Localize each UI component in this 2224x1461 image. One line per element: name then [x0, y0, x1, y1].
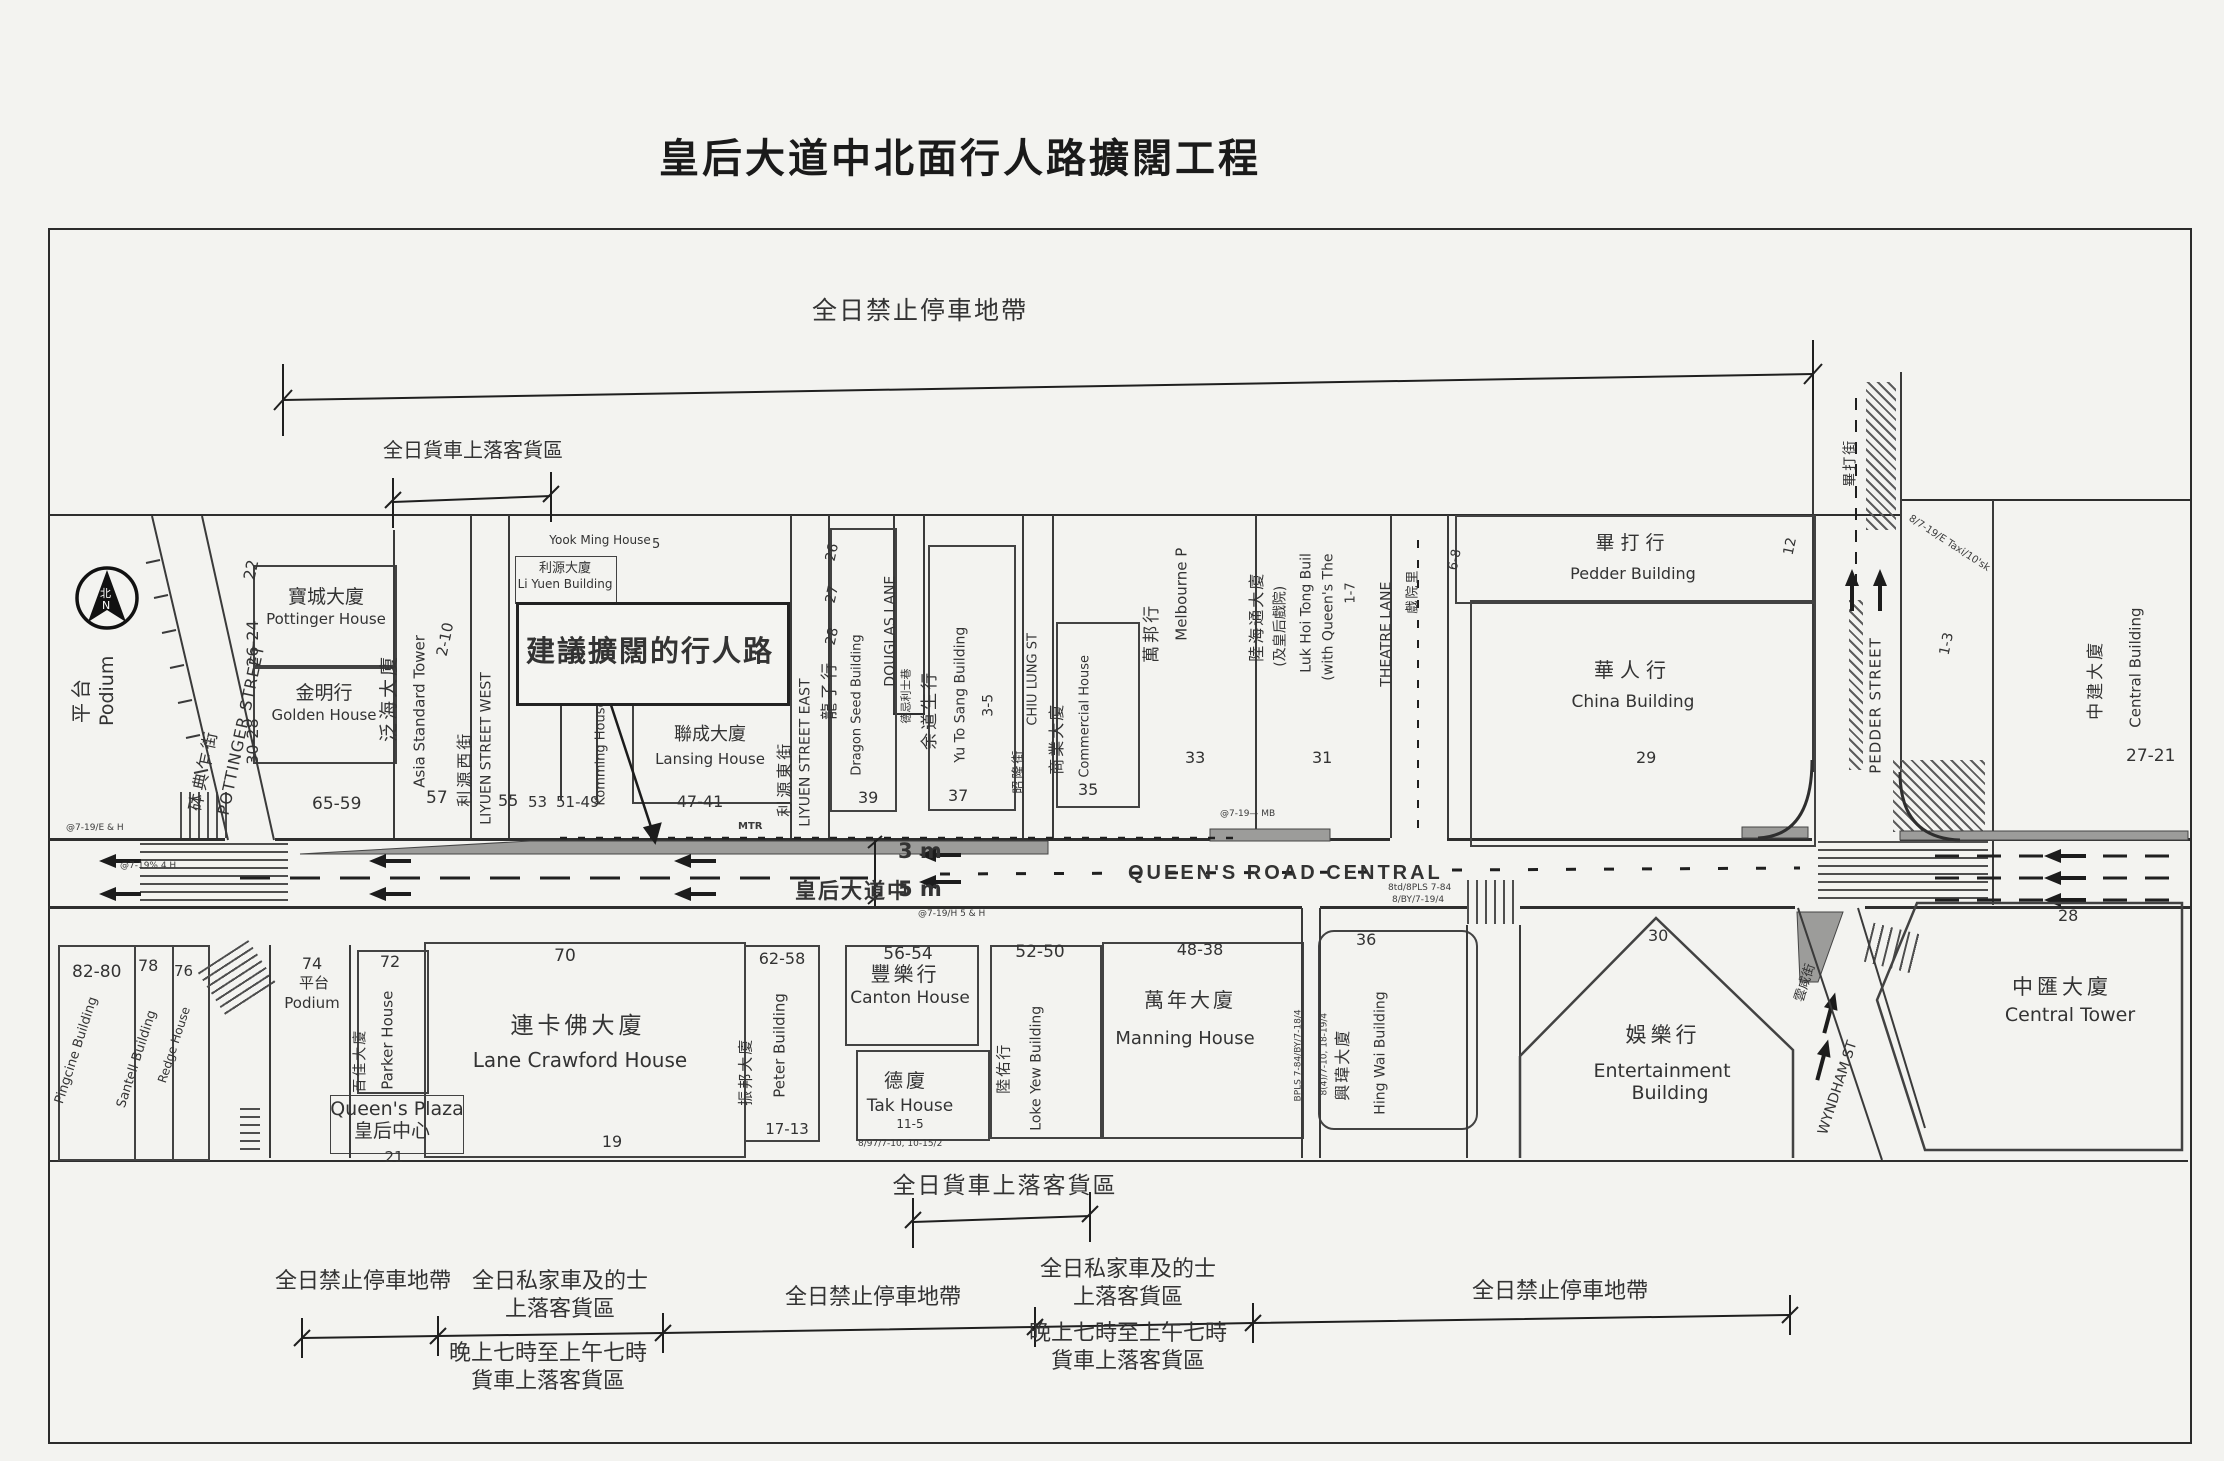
luk-hoi-tong-zh2: (及皇后戲院): [1273, 586, 1288, 667]
annotation-no-stopping-right: 全日禁止停車地帶: [1472, 1280, 1648, 1303]
loke-yew-en: Loke Yew Building: [1029, 1006, 1044, 1131]
entertainment-no: 30: [1648, 928, 1668, 945]
street-label-liyuen-east-zh: 利源東街: [777, 741, 794, 817]
hing-wai-no: 36: [1356, 932, 1376, 949]
road-dim-5m: 5 m: [898, 878, 942, 900]
svg-text:N: N: [102, 599, 110, 612]
commercial-house-zh: 商業大廈: [1049, 703, 1066, 775]
manning-house-zh: 萬年大廈: [1144, 990, 1236, 1011]
kerb-annotation: @7-19— MB: [1220, 810, 1275, 819]
hing-wai-en: Hing Wai Building: [1373, 991, 1388, 1114]
lot-number: 53: [528, 795, 547, 811]
pedder-building-zh: 畢打行: [1595, 534, 1670, 554]
kerb-annotation: 8/BY/7-19/4: [1392, 896, 1444, 905]
santell-no: 78: [138, 958, 158, 975]
loke-yew-no: 52-50: [1015, 944, 1064, 962]
hing-wai-zh: 興瑋大廈: [1335, 1029, 1352, 1101]
dragon-seed-en: Dragon Seed Building: [850, 634, 864, 775]
queens-plaza-en: Queen's Plaza: [330, 1100, 464, 1120]
annotation-night-truck-left-1: 晚上七時至上午七時: [449, 1342, 647, 1365]
central-tower-zh: 中匯大廈: [2012, 976, 2112, 998]
komming-house-en: Komming House: [594, 700, 608, 806]
liyuen-building-en: Li Yuen Building: [518, 578, 613, 591]
manning-house-no: 48-38: [1177, 942, 1224, 959]
kerb-annotation: @7-19/H 5 & H: [918, 910, 985, 919]
central-tower-no: 28: [2058, 908, 2078, 925]
tak-house-zh: 德廈: [884, 1072, 928, 1092]
parker-house-zh: 百佳大廈: [353, 1029, 368, 1093]
plan-linework: 北 N: [0, 0, 2224, 1461]
pottinger-house-no: 26-24: [245, 620, 262, 667]
entertainment-zh: 娛樂行: [1626, 1024, 1701, 1046]
lane-crawford-no1: 70: [554, 948, 576, 966]
china-building-zh: 華人行: [1594, 660, 1672, 681]
kerb-annotation: BPLS 7-84/BY/7-18/4: [1295, 1009, 1304, 1101]
queens-plaza-no: 21: [384, 1150, 403, 1166]
lane-crawford-no2: 19: [602, 1134, 622, 1151]
street-label-pedder-en: PEDDER STREET: [1868, 637, 1884, 774]
kerb-annotation: @7-19% 4 H: [120, 862, 176, 871]
central-tower-en: Central Tower: [2005, 1006, 2135, 1026]
street-label-chiu-lung-en: CHIU LUNG ST: [1026, 633, 1040, 726]
golden-house-en: Golden House: [272, 708, 377, 724]
entertainment-en2: Building: [1631, 1084, 1708, 1104]
north-arrow-icon: 北 N: [77, 568, 137, 628]
b8280-no: 82-80: [72, 964, 121, 982]
mtr-entrance-label: MTR: [738, 822, 762, 833]
podium-south-no: 74: [302, 956, 322, 973]
luk-hoi-tong-no1: 1-7: [1344, 582, 1358, 603]
street-label-theatre-en: THEATRE LANE: [1379, 582, 1394, 687]
parker-house-en: Parker House: [380, 991, 396, 1090]
yu-to-sang-zh: 余道生行: [922, 670, 940, 750]
yu-to-sang-en: Yu To Sang Building: [953, 627, 968, 763]
commercial-house-no: 35: [1078, 782, 1098, 799]
peter-building-no1: 62-58: [759, 951, 806, 968]
queens-plaza-zh: 皇后中心: [354, 1122, 430, 1142]
annotation-night-truck-right-1: 晚上七時至上午七時: [1029, 1322, 1227, 1345]
lot-number: 57: [426, 790, 448, 808]
melbourne-no: 33: [1185, 750, 1205, 767]
proposed-footpath-callout: 建議擴闊的行人路: [526, 636, 774, 666]
yook-ming-house-en: Yook Ming House: [549, 534, 651, 547]
asia-standard-en: Asia Standard Tower: [412, 635, 428, 788]
street-label-douglas-en: DOUGLAS LANE: [883, 576, 898, 687]
dragon-seed-zh: 龍子行: [822, 660, 840, 720]
kerb-annotation: 8(4)/7-10, 18-19/4: [1321, 1013, 1330, 1096]
podium-west-en: Podium: [98, 656, 118, 726]
annotation-no-stopping-mid: 全日禁止停車地帶: [785, 1286, 961, 1309]
tak-house-no: 11-5: [896, 1118, 923, 1131]
luk-hoi-tong-en2: (with Queen's The: [1321, 553, 1336, 680]
pottinger-house-zh: 寶城大廈: [288, 588, 364, 608]
golden-house-zh: 金明行: [295, 684, 352, 704]
entertainment-en1: Entertainment: [1593, 1062, 1730, 1082]
road-dim-3m: 3 m: [898, 840, 942, 862]
tak-house-en: Tak House: [867, 1098, 954, 1116]
podium-south-en: Podium: [284, 996, 340, 1012]
annotation-private-car-left-1: 全日私家車及的士: [472, 1270, 648, 1293]
china-building-en: China Building: [1572, 694, 1695, 712]
central-building-en: Central Building: [2128, 608, 2144, 728]
melbourne-en: Melbourne P: [1174, 548, 1190, 641]
lane-crawford-zh: 連卡佛大廈: [511, 1014, 646, 1038]
lansing-house-en: Lansing House: [655, 752, 765, 768]
pedder-building-en: Pedder Building: [1570, 566, 1696, 583]
annotation-private-car-right-1: 全日私家車及的士: [1040, 1258, 1216, 1281]
peter-building-zh: 振邦大廈: [738, 1038, 754, 1106]
canton-house-en: Canton House: [850, 990, 970, 1008]
street-label-chiu-lung-zh: 昭隆街: [1012, 749, 1026, 794]
canton-house-zh: 豐樂行: [871, 964, 940, 985]
lot-number: 27-21: [2126, 748, 2175, 766]
kerb-annotation: 8/97/7-10, 10-15/2: [858, 1140, 942, 1149]
annotation-loading-bottom: 全日貨車上落客貨區: [893, 1174, 1118, 1198]
parker-house-no: 72: [380, 954, 400, 971]
luk-hoi-tong-no2: 31: [1312, 750, 1332, 767]
street-label-douglas-zh: 德忌利士巷: [900, 669, 912, 724]
peter-building-no2: 17-13: [765, 1122, 809, 1138]
street-label-liyuen-east-en: LIYUEN STREET EAST: [798, 678, 813, 826]
manning-house-en: Manning House: [1115, 1030, 1254, 1049]
dragon-seed-no: 39: [858, 790, 878, 807]
commercial-house-en: Commercial House: [1078, 655, 1092, 778]
golden-house-no: 30-28: [245, 718, 262, 765]
kerb-annotation: 8td/8PLS 7-84: [1388, 884, 1451, 893]
kerb-annotation: @7-19/E & H: [66, 824, 124, 833]
liyuen-building-zh: 利源大廈: [539, 562, 591, 576]
melbourne-zh: 萬邦行: [1144, 603, 1162, 663]
peter-building-en: Peter Building: [772, 993, 788, 1098]
podium-south-zh: 平台: [299, 976, 329, 992]
loke-yew-zh: 陸佑行: [996, 1043, 1012, 1094]
annotation-night-truck-right-2: 貨車上落客貨區: [1051, 1350, 1205, 1373]
yu-to-sang-no1: 3-5: [981, 694, 996, 717]
redge-no: 76: [174, 964, 193, 980]
annotation-night-truck-left-2: 貨車上落客貨區: [471, 1370, 625, 1393]
street-label-theatre-zh: 戲院里: [1406, 569, 1420, 614]
road-name-en: QUEEN'S ROAD CENTRAL: [1128, 863, 1443, 884]
luk-hoi-tong-zh1: 陸海通大廈: [1249, 572, 1266, 662]
street-label-liyuen-west-en: LIYUEN STREET WEST: [479, 672, 494, 824]
annotation-private-car-right-2: 上落客貨區: [1073, 1286, 1183, 1309]
pottinger-house-en: Pottinger House: [266, 612, 386, 628]
lansing-house-no: 47-41: [677, 794, 724, 811]
yook-ming-house-no: 5: [652, 538, 660, 552]
asia-standard-zh: 泛海大廈: [380, 654, 400, 742]
street-label-liyuen-west-zh: 利源西街: [457, 731, 474, 807]
china-building-no: 29: [1636, 750, 1656, 767]
podium-west-zh: 平台: [71, 675, 92, 723]
scanned-road-works-plan: 皇后大道中北面行人路擴闊工程 全日禁止停車地帶 全日貨車上落客貨區: [0, 0, 2224, 1461]
road-name-zh: 皇后大道中: [795, 880, 910, 902]
luk-hoi-tong-en1: Luk Hoi Tong Buil: [1299, 553, 1314, 673]
annotation-no-stopping-left: 全日禁止停車地帶: [275, 1270, 451, 1293]
lane-crawford-en: Lane Crawford House: [473, 1050, 687, 1071]
yu-to-sang-no2: 37: [948, 788, 968, 805]
street-label-pedder-zh: 畢打街: [1843, 439, 1858, 487]
central-building-zh: 中建大廈: [2088, 640, 2106, 720]
lot-number: 55: [498, 793, 518, 810]
lot-number: 65-59: [312, 796, 361, 814]
lansing-house-zh: 聯成大廈: [674, 726, 746, 745]
annotation-private-car-left-2: 上落客貨區: [505, 1298, 615, 1321]
